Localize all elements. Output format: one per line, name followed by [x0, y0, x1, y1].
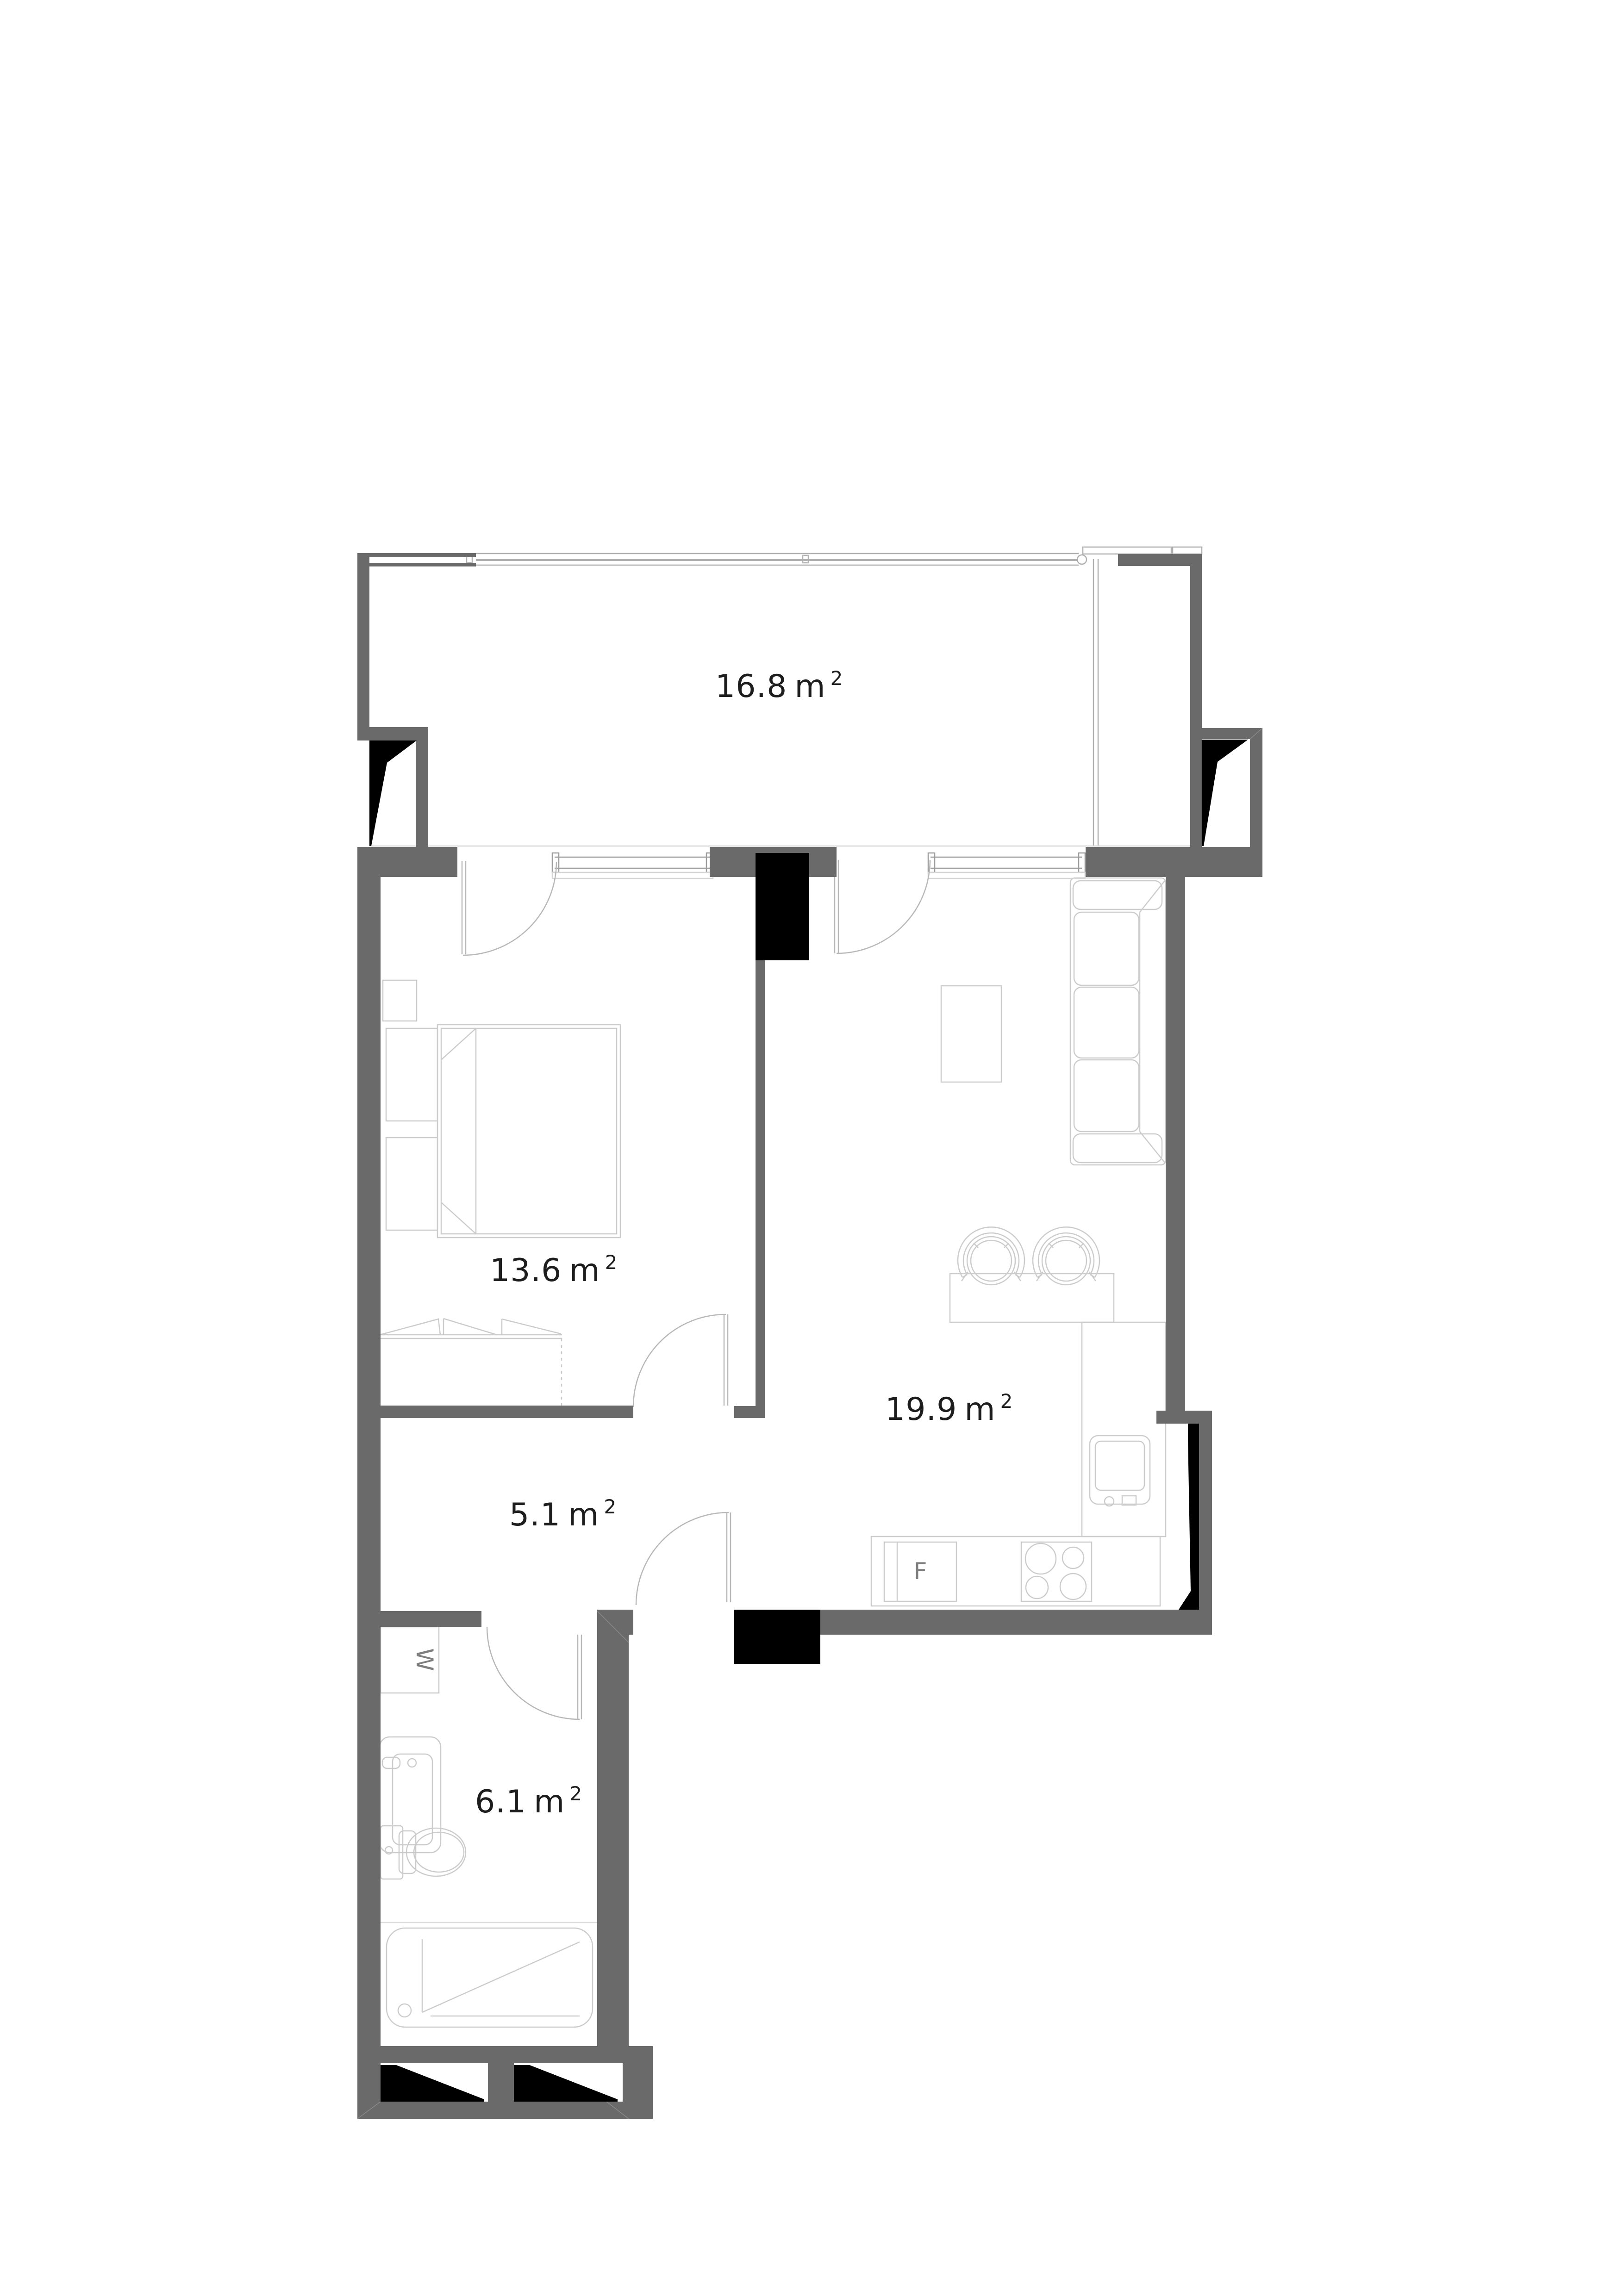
room-label-bathroom: 6.1m2 [475, 1782, 582, 1820]
stove [1021, 1542, 1092, 1601]
tv-stand [941, 986, 1001, 1082]
area-sup: 2 [1000, 1390, 1013, 1412]
wall-terrace-divider [1086, 847, 1262, 877]
door-leaf [724, 1314, 728, 1406]
bed-mattress [441, 1028, 617, 1234]
wall-terrace-parapet [357, 553, 476, 557]
sink-fitting [382, 1757, 400, 1768]
burner [1060, 1574, 1086, 1599]
floor-plan: 16.8m2 13.6m2 19.9m2 5.1m2 6.1m2 F W [0, 0, 1624, 2296]
bathtub [387, 1928, 593, 2027]
bathtub-slope-line [422, 1942, 580, 2012]
area-value: 19.9 [885, 1391, 957, 1428]
bed [437, 1025, 620, 1238]
glazing-frame [1173, 547, 1202, 554]
window-reveal-wedge-right [1179, 1424, 1199, 1610]
burner [1026, 1576, 1048, 1599]
shafts-and-reveals [369, 740, 1248, 2102]
wall-divider-foot [734, 1406, 765, 1418]
wardrobe-panel [380, 1319, 440, 1335]
bed-outline [437, 1025, 620, 1238]
sofa-cushion [1074, 912, 1139, 985]
area-sup: 2 [605, 1251, 618, 1274]
nightstand [386, 1138, 437, 1230]
sofa-outline [1070, 878, 1166, 1165]
bed-pillow-fold [441, 1202, 476, 1234]
wall-bathroom-bottom [357, 2046, 653, 2063]
chair-backrest-cap [1037, 1275, 1095, 1277]
room-label-hallway: 5.1m2 [509, 1495, 617, 1533]
glazing-frame [1083, 547, 1171, 554]
bathroom-sink [380, 1737, 441, 1853]
window-reveal-wedge-left [369, 740, 417, 846]
chair-backrest-cap [962, 1275, 1020, 1277]
window-glass-lines [555, 857, 710, 868]
sofa-armrest [1073, 1134, 1162, 1163]
window-reveal-wedge-bottom [381, 2065, 484, 2102]
door-swing-arc [463, 862, 556, 955]
area-value: 16.8 [715, 668, 787, 705]
window-reveal-wedge-topright [1202, 740, 1248, 846]
wall-bedroom-hallway [381, 1406, 633, 1418]
sink-basin [1095, 1441, 1144, 1490]
walls [357, 553, 1262, 2119]
area-sup: 2 [569, 1782, 582, 1805]
sofa-cushion [1074, 1060, 1139, 1132]
wall-terrace-left [357, 553, 369, 740]
door-bathroom [487, 1627, 581, 1719]
door-swing-arc [837, 860, 930, 953]
sofa-cushion [1074, 987, 1139, 1058]
bathtub-outline [387, 1928, 593, 2027]
radiator [383, 980, 417, 1021]
door-leaf [727, 1512, 731, 1602]
wall-left-outer [357, 847, 381, 2119]
wall-living-bottom [820, 1610, 1212, 1635]
wardrobe-panel [502, 1319, 561, 1335]
window-jamb [552, 853, 559, 872]
wall-left-window-niche [369, 727, 428, 740]
area-unit: m [569, 1252, 600, 1289]
shaft-top [756, 853, 809, 960]
sofa-armrest [1073, 881, 1162, 909]
bathtub-drain [398, 2004, 411, 2017]
wardrobe [380, 1319, 562, 1406]
room-label-terrace: 16.8m2 [715, 667, 843, 705]
burner [1062, 1547, 1084, 1568]
fridge-label: F [914, 1558, 927, 1585]
area-sup: 2 [831, 667, 843, 690]
door-swing-arc [636, 1512, 729, 1605]
wall-bathroom-right [597, 1635, 629, 2063]
door-leaf [462, 861, 466, 954]
window-reveal-wedge-bottom [514, 2065, 618, 2102]
room-label-bedroom: 13.6m2 [490, 1251, 618, 1289]
door-living-terrace [835, 860, 930, 953]
wall-bathroom-top [381, 1611, 481, 1627]
window-sill [552, 872, 713, 878]
bedroom-terrace-window [552, 853, 713, 878]
sofa-backrest [1140, 881, 1165, 1163]
chair-backrest [958, 1227, 1024, 1277]
area-sup: 2 [604, 1495, 617, 1518]
furniture-layer [380, 878, 1166, 2027]
wall-entrance-jamb [597, 1610, 633, 1635]
kitchen-sink [1090, 1436, 1150, 1506]
dining-table [950, 1274, 1114, 1322]
wall-topright-niche [1201, 728, 1262, 739]
door-leaf [578, 1635, 581, 1719]
area-unit: m [794, 668, 825, 705]
sink-faucet [408, 1759, 416, 1767]
door-entrance [636, 1512, 731, 1605]
wall-terrace-divider [357, 847, 457, 877]
wall-bottom-outer [357, 2102, 653, 2119]
wardrobe-panel [443, 1319, 497, 1335]
area-value: 6.1 [475, 1784, 526, 1820]
wall-living-right [1166, 876, 1185, 1411]
dining-chair [958, 1227, 1024, 1285]
washer-label: W [411, 1648, 438, 1671]
burner [1025, 1543, 1056, 1574]
window-jamb [1079, 853, 1085, 872]
wall-left-window-niche [416, 740, 428, 847]
area-value: 13.6 [490, 1252, 562, 1289]
area-unit: m [964, 1391, 995, 1428]
doors [462, 860, 930, 1719]
sink-outline [1090, 1436, 1150, 1504]
wall-right-niche-top [1156, 1411, 1212, 1424]
window-sill [928, 872, 1085, 878]
nightstand [386, 1028, 437, 1121]
door-bedroom-terrace [462, 861, 556, 955]
wall-terrace-parapet [357, 563, 476, 566]
door-swing-arc [487, 1627, 580, 1719]
sofa [1070, 878, 1166, 1165]
shaft-entrance [734, 1610, 820, 1664]
area-unit: m [534, 1784, 565, 1820]
room-label-living-kitchen: 19.9m2 [885, 1390, 1013, 1428]
dining-chair [1033, 1227, 1099, 1285]
wall-corner [623, 2063, 653, 2102]
door-bedroom-hallway [633, 1314, 728, 1407]
glazing-junction [1077, 555, 1087, 564]
window-glass-lines [931, 857, 1082, 868]
wall-right-niche-outer [1199, 1424, 1212, 1635]
bed-pillow-fold [441, 1028, 476, 1060]
wall-window-mullion [488, 2063, 514, 2102]
wall-miter-lines [357, 728, 1262, 2119]
area-unit: m [568, 1497, 599, 1533]
door-swing-arc [633, 1314, 726, 1407]
wall-terrace-top-right [1118, 554, 1202, 566]
wall-terrace-right [1190, 566, 1202, 847]
chair-backrest [1033, 1227, 1099, 1277]
living-terrace-window [928, 853, 1085, 878]
area-value: 5.1 [509, 1497, 561, 1533]
wall-bedroom-living-divider [756, 960, 765, 1406]
